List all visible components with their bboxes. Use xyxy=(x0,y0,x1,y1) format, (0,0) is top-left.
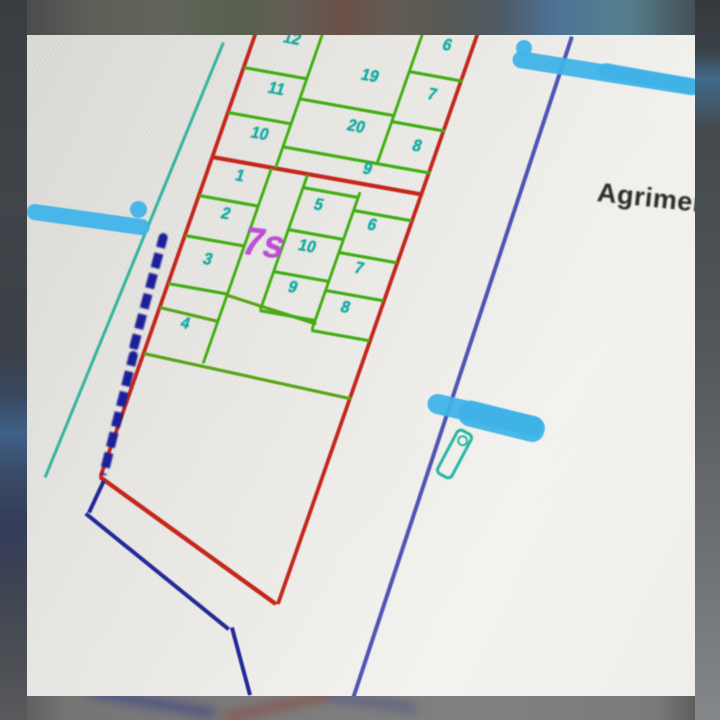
parcel-number-11: 11 xyxy=(259,79,293,100)
blur-blob xyxy=(222,696,331,720)
blur-blob xyxy=(87,696,217,718)
highlighter-stroke-left xyxy=(130,201,147,218)
red-boundary-bottom xyxy=(98,475,277,606)
parcel-number-7-upper: 7 xyxy=(415,85,449,106)
blurred-bottom-band xyxy=(27,696,695,720)
parcel-number-19: 19 xyxy=(353,66,387,87)
parcel-number-9-center: 9 xyxy=(276,278,310,299)
parcel-number-3: 3 xyxy=(190,250,224,271)
green-parcel-line xyxy=(299,97,394,117)
plan-paper: 12 11 10 19 20 6 7 8 9 1 2 3 4 5 6 10 7 … xyxy=(27,35,695,696)
parcel-number-8-upper: 8 xyxy=(400,136,434,157)
parcel-number-6-upper: 6 xyxy=(430,35,464,56)
parcel-number-6-center: 6 xyxy=(355,215,389,236)
green-parcel-line xyxy=(184,234,244,248)
green-parcel-line xyxy=(391,120,446,133)
right-letterbox-bar xyxy=(695,0,720,720)
parcel-number-7-center: 7 xyxy=(342,259,376,280)
green-parcel-line xyxy=(168,282,228,296)
blur-blob xyxy=(327,696,417,712)
green-parcel-line xyxy=(243,66,307,80)
photo-of-subdivision-plan: 12 11 10 19 20 6 7 8 9 1 2 3 4 5 6 10 7 … xyxy=(0,0,720,720)
parcel-number-1: 1 xyxy=(223,166,257,187)
highlighter-stroke-top xyxy=(516,40,532,56)
parcel-number-20: 20 xyxy=(339,117,373,138)
green-parcel-line xyxy=(228,111,292,125)
parcel-number-2: 2 xyxy=(208,204,242,225)
left-letterbox-bar xyxy=(0,0,27,720)
green-long-line xyxy=(143,352,352,400)
green-parcel-line xyxy=(311,328,371,342)
parcel-number-8-center: 8 xyxy=(328,298,362,319)
blurred-top-band xyxy=(27,0,695,35)
parcel-number-10-center: 10 xyxy=(290,237,324,258)
parcel-number-12: 12 xyxy=(275,35,309,50)
parcel-number-10-upper: 10 xyxy=(242,124,276,145)
paper-content: 12 11 10 19 20 6 7 8 9 1 2 3 4 5 6 10 7 … xyxy=(27,35,695,696)
green-parcel-line xyxy=(408,70,463,83)
purple-plot-annotation: 7s xyxy=(237,220,291,268)
green-parcel-line xyxy=(259,309,315,322)
parcel-number-5: 5 xyxy=(301,195,335,216)
